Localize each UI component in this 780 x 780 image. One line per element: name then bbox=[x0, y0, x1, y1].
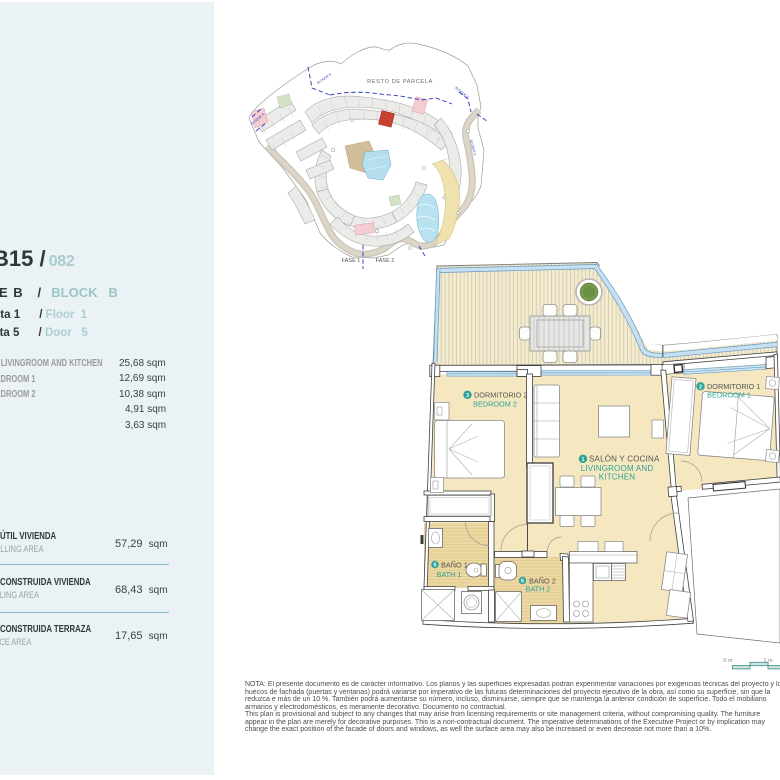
svg-text:3: 3 bbox=[466, 393, 469, 399]
svg-text:2: 2 bbox=[699, 385, 702, 391]
svg-text:RESTO DE PARCELA: RESTO DE PARCELA bbox=[367, 79, 433, 85]
svg-text:BEDROOM 1: BEDROOM 1 bbox=[707, 391, 751, 400]
svg-text:6: 6 bbox=[521, 579, 524, 585]
svg-text:BEDROOM 2: BEDROOM 2 bbox=[473, 400, 517, 409]
svg-text:KITCHEN: KITCHEN bbox=[599, 473, 636, 482]
svg-text:LIVINGROOM AND: LIVINGROOM AND bbox=[581, 464, 654, 473]
svg-text:SALÓN Y COCINA: SALÓN Y COCINA bbox=[589, 455, 660, 464]
svg-text:BATH 2: BATH 2 bbox=[525, 585, 550, 594]
svg-text:DORMITORIO 2: DORMITORIO 2 bbox=[474, 391, 527, 400]
svg-text:1: 1 bbox=[581, 457, 584, 463]
svg-text:5: 5 bbox=[433, 563, 436, 569]
svg-text:BATH 1: BATH 1 bbox=[436, 570, 461, 579]
svg-text:BAÑO 1: BAÑO 1 bbox=[441, 561, 468, 570]
svg-text:0 m: 0 m bbox=[723, 658, 733, 664]
svg-text:FASE 1: FASE 1 bbox=[342, 258, 361, 264]
svg-text:FASE 2: FASE 2 bbox=[376, 258, 395, 264]
